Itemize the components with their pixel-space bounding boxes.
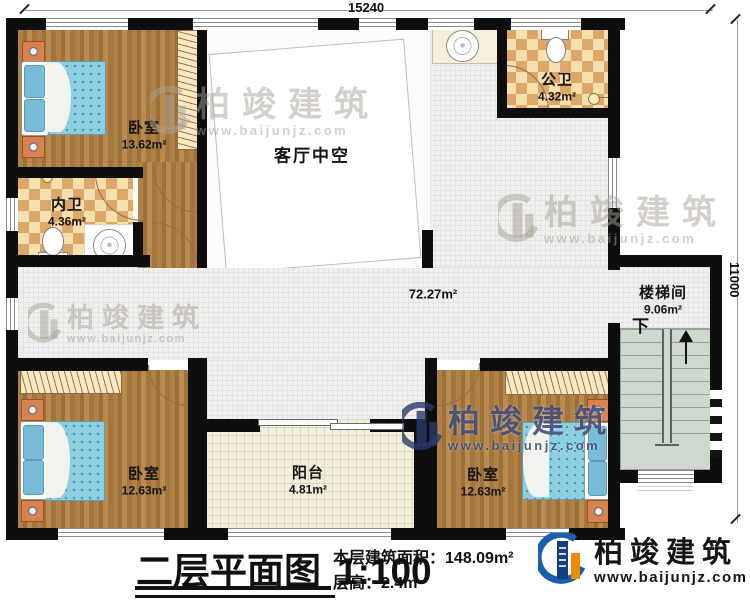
room-area: 4.81m² (289, 483, 327, 497)
plan-info: 本层建筑面积：148.09m² 层高：2.4m (333, 546, 514, 596)
room-name: 卧室 (122, 463, 167, 484)
wall (133, 167, 143, 178)
toilet-bowl-icon (546, 37, 566, 63)
wall (197, 18, 207, 268)
room-name: 卧室 (461, 464, 506, 485)
window (6, 197, 18, 232)
wall (497, 18, 507, 65)
pillow (24, 65, 45, 98)
wall (6, 358, 148, 371)
room-area: 12.63m² (461, 485, 506, 499)
brand-logo-icon (538, 533, 588, 591)
wardrobe (20, 368, 122, 394)
room-name: 楼梯间 (639, 282, 687, 303)
room-label-bedroom-tl: 卧室 13.62m² (122, 117, 167, 152)
window (358, 18, 397, 30)
window (227, 528, 392, 540)
room-name: 卧室 (122, 117, 167, 138)
hallway-floor-center (207, 360, 425, 420)
dimension-tick (730, 514, 741, 525)
wall (480, 358, 612, 371)
hallway-floor-main (18, 267, 608, 360)
nightstand (587, 399, 610, 422)
window (710, 390, 722, 458)
room-name: 阳台 (289, 462, 327, 483)
floor-area-value: 148.09m² (445, 550, 514, 567)
room-label-bedroom-br: 卧室 12.63m² (461, 464, 506, 499)
wall (497, 108, 620, 118)
room-name: 内卫 (48, 194, 86, 215)
pillow (23, 425, 44, 460)
wall (425, 358, 437, 540)
room-label-balcony: 阳台 4.81m² (289, 462, 327, 497)
floor-drain-icon (588, 93, 600, 105)
exterior-step (637, 483, 693, 494)
room-label-inner-bath: 内卫 4.36m² (48, 194, 86, 229)
stair-direction-arrow (685, 340, 687, 364)
pillow (588, 461, 607, 496)
room-label-hallway: 72.27m² (409, 287, 457, 302)
brand-website: www.baijunjz.com (594, 569, 747, 586)
dimension-tick (730, 14, 741, 25)
wall (608, 323, 620, 540)
pillow (23, 460, 44, 495)
window (6, 297, 18, 331)
room-area: 72.27m² (409, 287, 457, 302)
wardrobe (177, 30, 199, 150)
floor-area-line: 本层建筑面积：148.09m² (333, 546, 514, 571)
room-area: 4.32m² (538, 90, 576, 104)
sink-icon (446, 30, 479, 62)
sliding-door-panel (258, 419, 338, 426)
stairs (620, 328, 712, 470)
wardrobe (505, 368, 610, 395)
nightstand (22, 136, 45, 158)
toilet-bowl-icon (42, 227, 64, 256)
stair-railing (662, 329, 672, 443)
title-underline (135, 586, 331, 590)
room-area: 4.36m² (48, 215, 86, 229)
dimension-tick (19, 4, 30, 15)
brand-name: 柏竣建筑 (594, 538, 747, 568)
wall (6, 255, 150, 267)
wall (497, 65, 507, 118)
window (608, 157, 620, 209)
window (57, 528, 165, 540)
room-area: 13.62m² (122, 138, 167, 152)
window (45, 18, 129, 30)
brand-logo: 柏竣建筑 www.baijunjz.com (538, 533, 747, 591)
window (427, 18, 475, 30)
floor-plan: 15240 11000 (0, 0, 750, 600)
room-label-public-bath: 公卫 4.32m² (538, 69, 576, 104)
wall (608, 255, 722, 267)
pillow (588, 426, 607, 461)
room-name: 客厅中空 (274, 147, 350, 166)
stair-arrow-head (679, 330, 693, 342)
window (637, 470, 695, 483)
wall (204, 419, 260, 432)
wall (414, 419, 426, 528)
nightstand (21, 399, 44, 421)
pillow (24, 99, 45, 132)
floor-height-value: 2.4m (381, 575, 417, 592)
room-label-bedroom-bl: 卧室 12.63m² (122, 463, 167, 498)
dimension-tick (705, 4, 716, 15)
room-label-living-void: 客厅中空 (274, 142, 350, 167)
floor-height-line: 层高：2.4m (333, 571, 514, 596)
room-area: 12.63m² (122, 484, 167, 498)
nightstand (587, 500, 610, 523)
bed-blanket (523, 423, 549, 497)
nightstand (22, 41, 45, 62)
dimension-width: 15240 (348, 0, 384, 15)
wall (422, 230, 433, 268)
stairs-down-label: 下 (632, 312, 649, 337)
nightstand (21, 500, 44, 522)
window (510, 18, 582, 30)
title-underline (135, 595, 335, 598)
wall (18, 167, 138, 178)
sliding-door-panel (330, 423, 404, 430)
wall (188, 358, 207, 540)
floor-height-label: 层高： (333, 575, 381, 592)
window (192, 18, 319, 30)
wall (6, 18, 18, 540)
dimension-height: 11000 (727, 262, 742, 297)
floor-area-label: 本层建筑面积： (333, 550, 445, 567)
room-name: 公卫 (538, 69, 576, 90)
wall (608, 18, 620, 157)
